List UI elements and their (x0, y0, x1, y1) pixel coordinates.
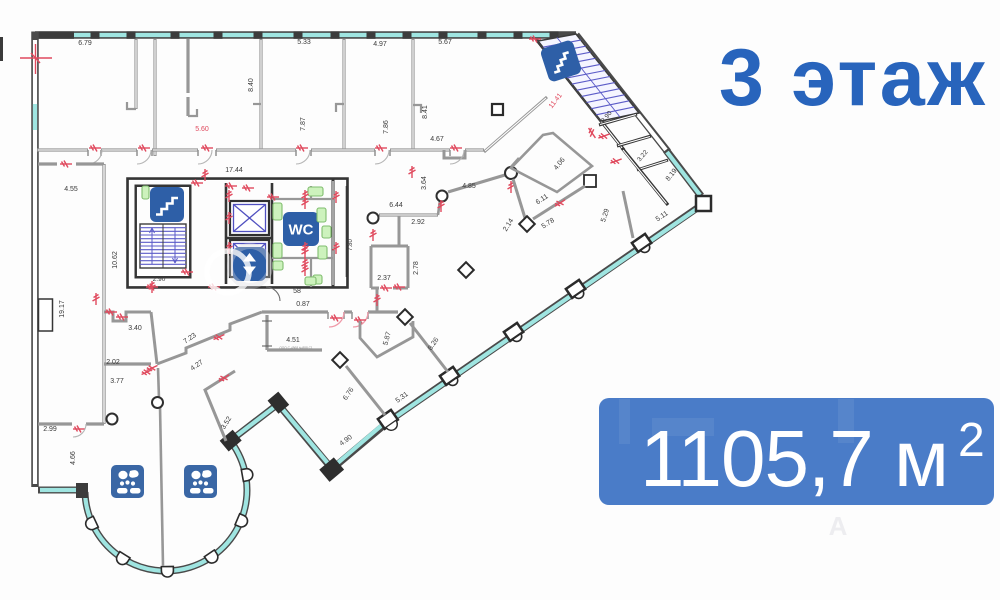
svg-text:7.80: 7.80 (348, 239, 354, 251)
svg-text:1105,7 м: 1105,7 м (640, 414, 948, 503)
svg-text:2.37: 2.37 (377, 275, 391, 282)
svg-text:7.87: 7.87 (300, 117, 307, 131)
svg-text:2: 2 (958, 414, 985, 467)
svg-text:2.99: 2.99 (43, 426, 57, 433)
svg-text:4.67: 4.67 (430, 136, 444, 143)
svg-text:5.33: 5.33 (297, 39, 311, 46)
svg-text:6.44: 6.44 (389, 202, 403, 209)
svg-text:А: А (829, 511, 848, 541)
svg-text:5.60: 5.60 (195, 126, 209, 133)
svg-text:8.41: 8.41 (422, 105, 429, 119)
svg-text:3.77: 3.77 (110, 378, 124, 385)
svg-text:6.79: 6.79 (78, 40, 92, 47)
svg-text:8.40: 8.40 (248, 78, 255, 92)
svg-text:5.67: 5.67 (438, 39, 452, 46)
svg-text:58: 58 (293, 288, 301, 295)
svg-text:WC: WC (289, 222, 314, 239)
svg-text:4.85: 4.85 (462, 183, 476, 190)
svg-text:19.17: 19.17 (59, 300, 66, 318)
svg-text:ООО С-4568 №888 С1: ООО С-4568 №888 С1 (279, 346, 313, 350)
svg-text:7.86: 7.86 (383, 120, 390, 134)
svg-text:4.97: 4.97 (373, 41, 387, 48)
svg-text:3.64: 3.64 (421, 176, 428, 190)
svg-text:4.66: 4.66 (70, 451, 77, 465)
svg-text:0.87: 0.87 (296, 301, 310, 308)
svg-text:2.02: 2.02 (106, 359, 120, 366)
svg-text:4.55: 4.55 (64, 186, 78, 193)
svg-text:3 этаж: 3 этаж (719, 33, 987, 123)
svg-text:2.92: 2.92 (411, 219, 425, 226)
svg-text:2.78: 2.78 (413, 261, 420, 275)
svg-text:2.90: 2.90 (153, 276, 166, 283)
svg-text:3.40: 3.40 (128, 325, 142, 332)
svg-text:10.62: 10.62 (112, 251, 119, 269)
svg-text:4.51: 4.51 (286, 337, 300, 344)
svg-text:17.44: 17.44 (225, 167, 243, 174)
